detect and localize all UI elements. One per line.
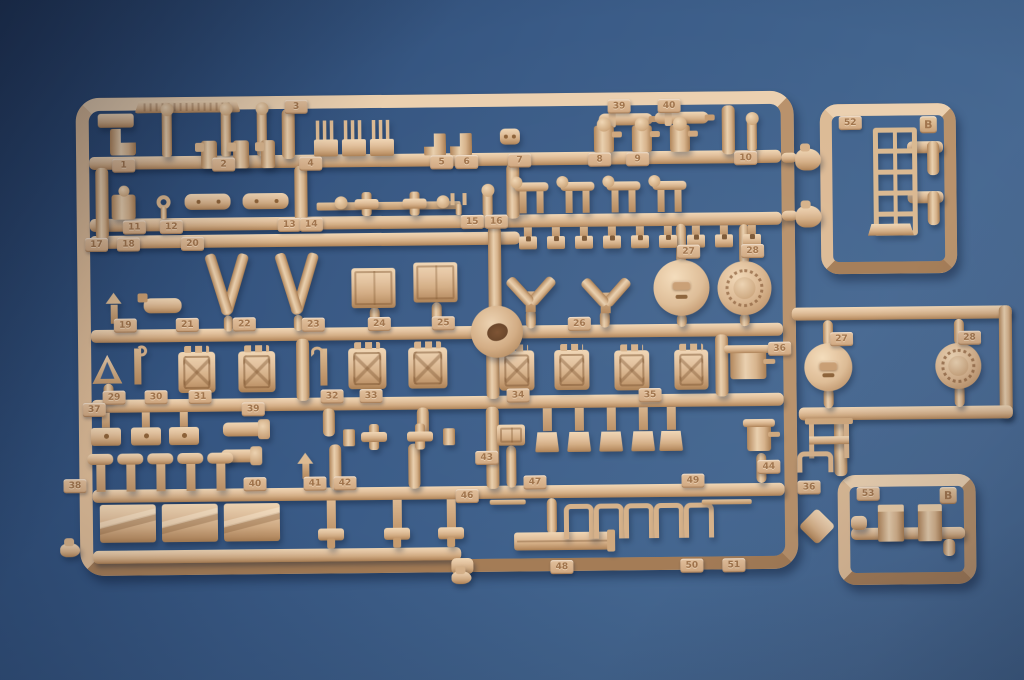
part-jerrycan — [674, 350, 708, 390]
part-hookpart — [315, 348, 331, 385]
part-uclipsm — [797, 451, 833, 472]
part-number-tag: 29 — [103, 391, 126, 405]
sprue-runner — [95, 168, 109, 240]
part-bracket-sq — [715, 225, 733, 247]
part-number-tag: 1 — [112, 159, 135, 173]
part-number-tag: 40 — [243, 477, 266, 491]
part-number-tag: 36 — [798, 480, 821, 494]
part-number-tag: 7 — [508, 153, 531, 167]
part-figure — [111, 195, 135, 220]
part-bracket-sq — [603, 226, 621, 248]
part-armpart — [560, 182, 594, 213]
part-platepin — [91, 413, 121, 446]
part-number-tag: 41 — [303, 477, 326, 491]
part-hammer — [87, 454, 113, 492]
mini-sprue-top-number-tag: 52 — [839, 116, 862, 130]
part-hookpin — [261, 140, 275, 168]
part-number-tag: 39 — [242, 402, 265, 416]
part-extinguisher — [144, 298, 182, 313]
part-hatch-ring — [935, 343, 981, 389]
part-pin — [162, 110, 172, 157]
mini-sprue-bottom-letter-b: B — [940, 487, 957, 504]
sprue-runner — [943, 539, 955, 556]
part-knob — [437, 195, 450, 208]
part-number-tag: 9 — [626, 152, 649, 166]
sprue-runner — [722, 105, 736, 154]
part-slantbox — [224, 503, 280, 542]
part-thinrod — [702, 499, 752, 505]
part-tab — [98, 114, 134, 128]
part-periscope — [632, 125, 652, 152]
part-eyelet — [500, 128, 520, 144]
part-number-tag: 49 — [681, 474, 704, 488]
part-number-tag: 24 — [368, 317, 391, 331]
part-wform — [575, 267, 635, 314]
part-vee — [203, 250, 250, 316]
part-number-tag: 27 — [830, 332, 853, 346]
part-nub — [60, 543, 80, 557]
part-tee-plumb — [438, 499, 464, 544]
part-tee-down — [659, 407, 683, 451]
part-collar — [443, 428, 455, 445]
part-number-tag: 6 — [455, 155, 478, 169]
part-jerrycan — [238, 351, 275, 392]
part-armpart — [606, 181, 640, 212]
part-comb — [314, 120, 338, 156]
part-number-tag: 33 — [360, 389, 383, 403]
part-tee-down — [599, 407, 623, 451]
part-number-tag: 46 — [456, 489, 479, 503]
sprue-runner — [792, 305, 1012, 320]
part-cross — [407, 423, 433, 449]
part-number-tag: 2 — [212, 157, 235, 171]
sprue-runner — [999, 305, 1013, 418]
sprue-runner — [296, 339, 310, 401]
part-hatch-plain — [653, 260, 710, 317]
part-cross — [402, 191, 426, 215]
part-number-tag: 39 — [608, 99, 631, 113]
sprue-runner — [506, 446, 516, 488]
part-pin — [747, 119, 757, 151]
sprue-runner — [408, 444, 420, 489]
part-number-tag: 48 — [550, 560, 573, 574]
sprue-runner — [224, 316, 233, 332]
part-tee-down — [567, 408, 591, 452]
part-plate — [242, 193, 288, 209]
part-number-tag: 20 — [181, 237, 204, 251]
part-armpart — [514, 182, 548, 213]
part-hatch-plain — [804, 343, 853, 392]
part-number-tag: 25 — [432, 316, 455, 330]
sprue-runner — [715, 334, 729, 396]
part-number-tag: 10 — [734, 151, 757, 165]
part-number-tag: 19 — [114, 319, 137, 333]
sprue-runner — [927, 141, 939, 175]
part-number-tag: 28 — [958, 331, 981, 345]
part-number-tag: 3 — [284, 100, 307, 114]
part-number-tag: 21 — [176, 318, 199, 332]
part-number-tag: 32 — [321, 389, 344, 403]
part-pin — [482, 191, 492, 216]
part-nub — [795, 148, 821, 170]
part-jerrycan — [554, 350, 589, 390]
part-number-tag: 5 — [430, 155, 453, 169]
part-ladder — [873, 127, 918, 235]
part-comb — [342, 120, 366, 156]
part-number-tag: 11 — [123, 220, 146, 234]
sprue-runner — [851, 516, 867, 530]
part-vee — [273, 250, 320, 316]
part-wform — [501, 266, 559, 313]
part-rodhook — [130, 348, 144, 384]
part-crate — [351, 268, 395, 308]
part-periscope — [594, 126, 614, 153]
part-valve — [747, 421, 771, 451]
sprue-runner — [282, 109, 296, 159]
part-number-tag: 35 — [639, 388, 662, 402]
part-block — [878, 504, 904, 541]
sprue-runner — [294, 166, 308, 221]
part-number-tag: 47 — [523, 475, 546, 489]
part-valve — [730, 347, 766, 379]
part-slantbox — [100, 504, 156, 543]
part-cross — [354, 192, 378, 216]
sprue-runner — [323, 408, 335, 436]
part-fork — [450, 193, 466, 215]
part-jerrycan — [178, 352, 215, 393]
part-platepin — [131, 412, 161, 445]
part-number-tag: 16 — [485, 215, 508, 229]
part-uclipsm — [564, 504, 594, 539]
part-number-tag: 12 — [160, 220, 183, 234]
part-bracket-sq — [547, 227, 565, 249]
part-horn — [223, 422, 263, 436]
part-number-tag: 8 — [588, 153, 611, 167]
part-block — [918, 504, 942, 541]
part-collar — [343, 429, 355, 446]
part-nub — [451, 571, 471, 584]
part-number-tag: 26 — [568, 317, 591, 331]
part-number-tag: 51 — [722, 558, 745, 572]
part-tee-plumb — [384, 500, 410, 545]
part-uclipsm — [594, 503, 624, 538]
part-tee-down — [535, 408, 559, 452]
part-number-tag: 27 — [677, 245, 700, 259]
part-number-tag: 28 — [741, 244, 764, 258]
photo-blue-background: 52 B 53 B 339401245678910111213141516171… — [0, 0, 1024, 680]
part-uclipsm — [624, 503, 654, 538]
part-cross — [361, 424, 387, 450]
part-uclipsm — [654, 503, 684, 538]
part-hookpin — [233, 140, 249, 168]
part-number-tag: 18 — [117, 237, 140, 251]
part-ringpin — [156, 195, 170, 219]
mini-sprue-top-letter-b: B — [920, 116, 937, 133]
part-number-tag: 23 — [302, 318, 325, 332]
part-periscope — [670, 125, 690, 152]
part-slantbox — [162, 504, 218, 543]
part-jerrycan — [408, 347, 447, 388]
part-nub — [796, 205, 822, 227]
part-hammer — [147, 453, 173, 491]
part-number-tag: 37 — [83, 403, 106, 417]
part-armpart — [652, 181, 686, 212]
part-number-tag: 31 — [189, 390, 212, 404]
part-gate — [471, 305, 524, 358]
part-number-tag: 36 — [768, 342, 791, 356]
part-knob — [335, 196, 348, 209]
part-number-tag: 22 — [233, 317, 256, 331]
sprue-runner — [927, 191, 939, 225]
part-number-tag: 44 — [757, 460, 780, 474]
sprue-runner — [486, 407, 500, 489]
sprue-runner — [547, 498, 557, 534]
mini-sprue-bottom-number-tag: 53 — [857, 487, 880, 501]
part-number-tag: 17 — [85, 238, 108, 252]
part-hammer — [117, 453, 143, 491]
part-jerrycan — [614, 350, 649, 390]
part-number-tag: 4 — [299, 157, 322, 171]
part-number-tag: 43 — [475, 451, 498, 465]
part-hammer — [177, 453, 203, 491]
part-number-tag: 34 — [507, 388, 530, 402]
part-number-tag: 38 — [63, 479, 86, 493]
part-bracket-sq — [575, 227, 593, 249]
part-number-tag: 13 — [278, 218, 301, 232]
part-comb — [370, 120, 394, 156]
part-crate — [413, 262, 457, 302]
part-bracket-sq — [659, 226, 677, 248]
part-number-tag: 14 — [300, 218, 323, 232]
part-number-tag: 50 — [680, 559, 703, 573]
part-uclipsm — [684, 502, 714, 537]
part-arrowpin — [297, 453, 313, 479]
part-number-tag: 40 — [658, 99, 681, 113]
part-diamond — [799, 508, 836, 545]
part-hatch-ring — [717, 261, 772, 316]
sprue-photo-group: 52 B 53 B 339401245678910111213141516171… — [0, 0, 1024, 680]
part-number-tag: 30 — [145, 390, 168, 404]
part-hammer — [207, 453, 233, 491]
part-bracket-sq — [631, 226, 649, 248]
part-jerrycan — [348, 348, 386, 389]
part-number-tag: 42 — [333, 476, 356, 490]
part-tee-plumb — [318, 500, 344, 545]
part-bracket-sq — [519, 227, 537, 249]
part-crate — [497, 424, 525, 445]
part-platepin — [169, 412, 199, 445]
part-plate — [184, 194, 230, 210]
part-number-tag: 15 — [461, 215, 484, 229]
part-tee-down — [631, 407, 655, 451]
part-ladderfoot — [868, 223, 914, 235]
part-thinrod — [490, 499, 526, 504]
